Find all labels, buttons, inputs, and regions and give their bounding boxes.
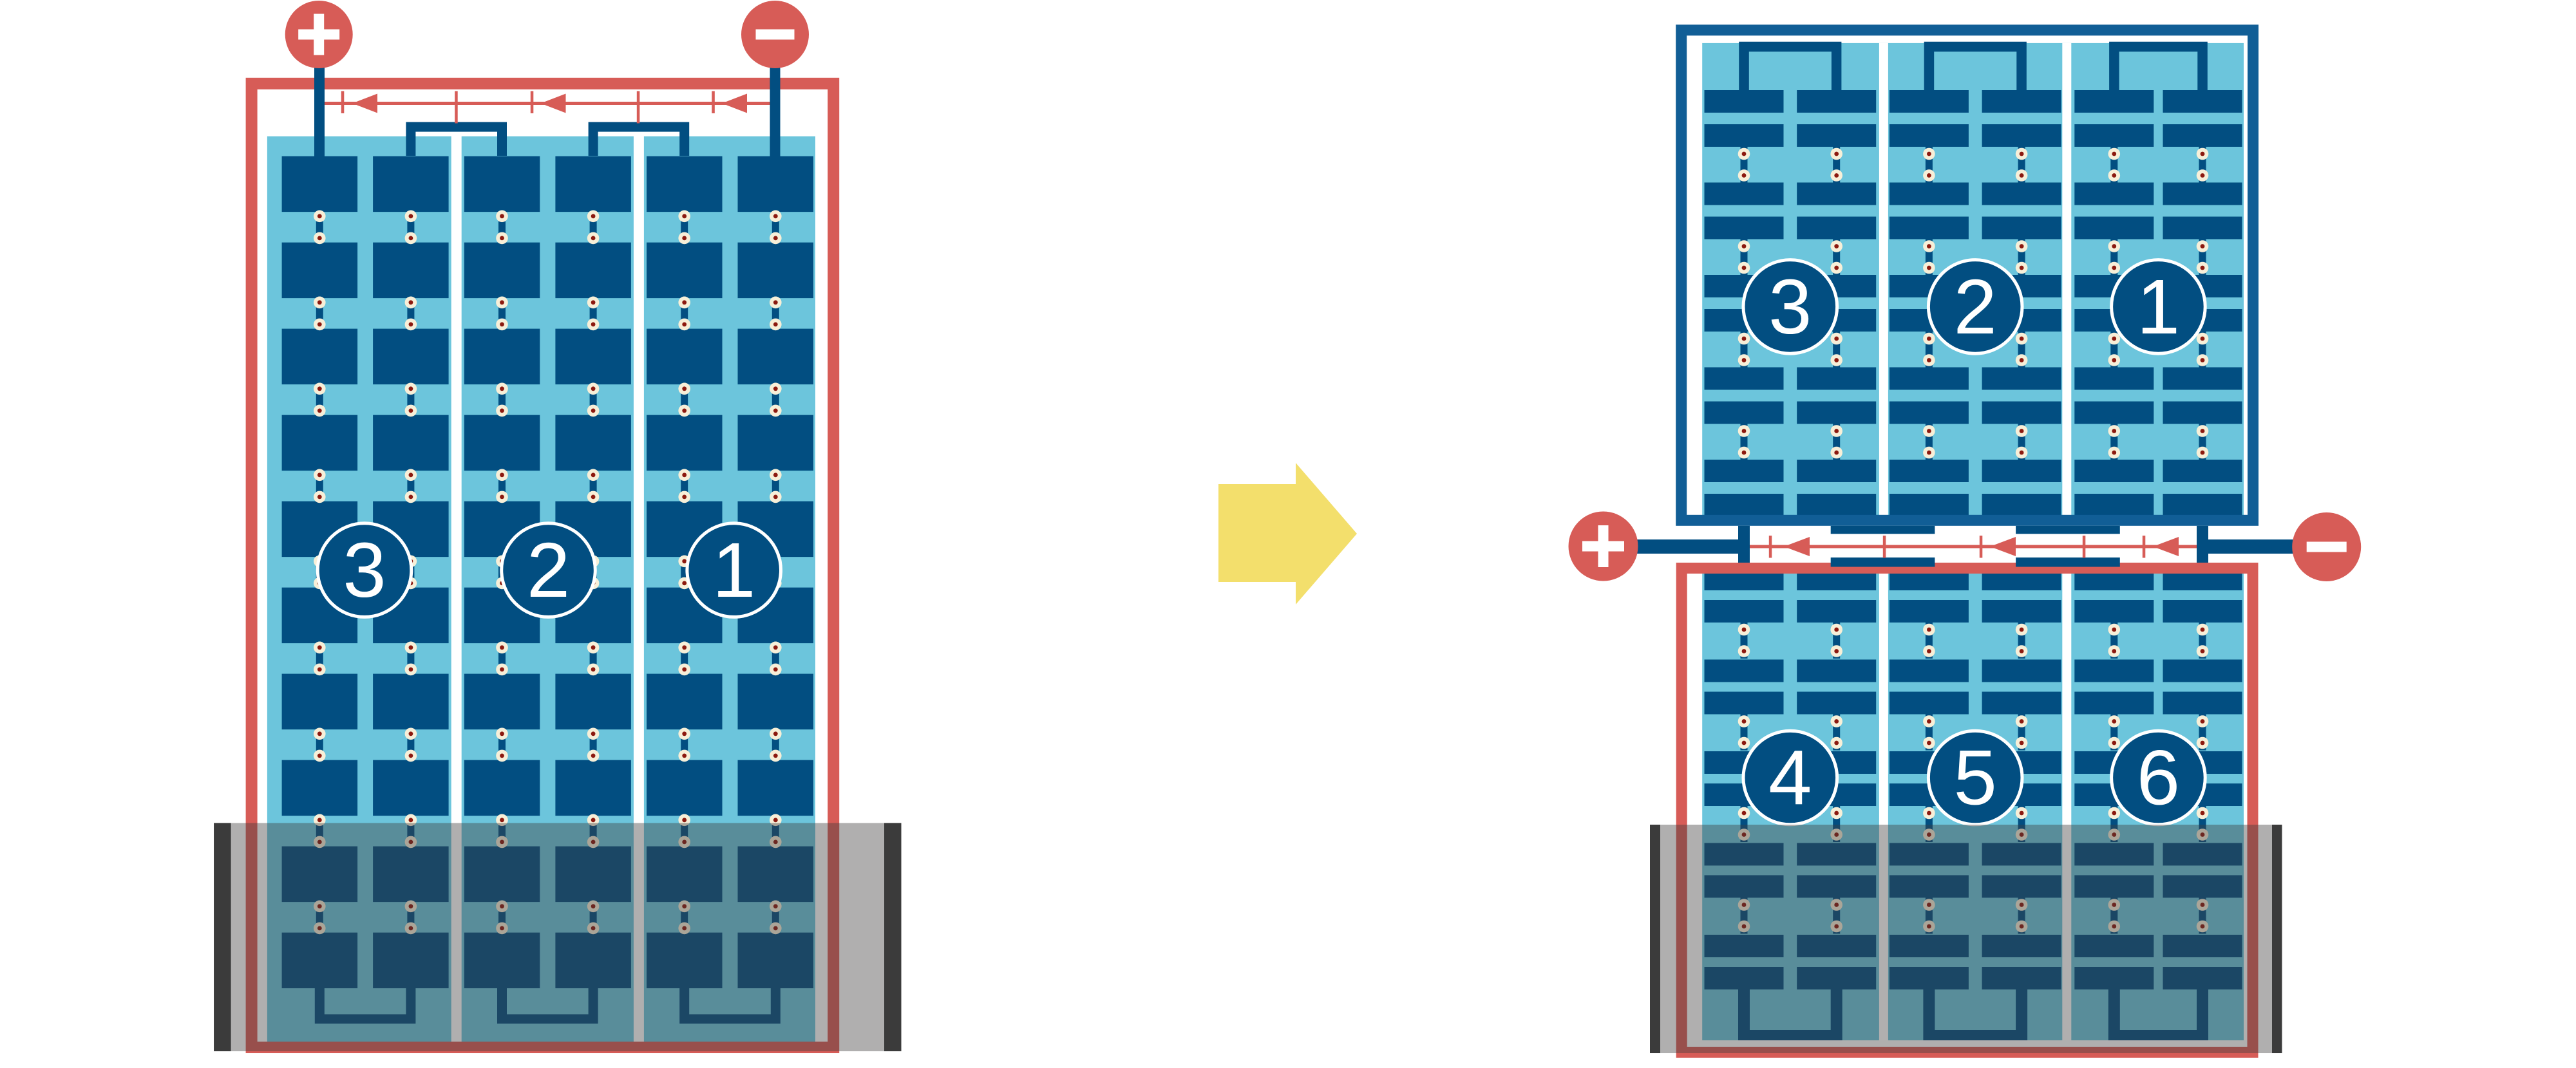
- svg-text:2: 2: [1954, 263, 1997, 350]
- svg-text:5: 5: [1954, 734, 1997, 821]
- svg-text:3: 3: [1768, 263, 1812, 350]
- svg-text:3: 3: [343, 526, 386, 614]
- svg-text:1: 1: [2137, 263, 2180, 350]
- svg-text:6: 6: [2137, 734, 2180, 821]
- svg-text:2: 2: [527, 526, 570, 614]
- svg-text:4: 4: [1768, 734, 1812, 821]
- svg-text:1: 1: [712, 526, 755, 614]
